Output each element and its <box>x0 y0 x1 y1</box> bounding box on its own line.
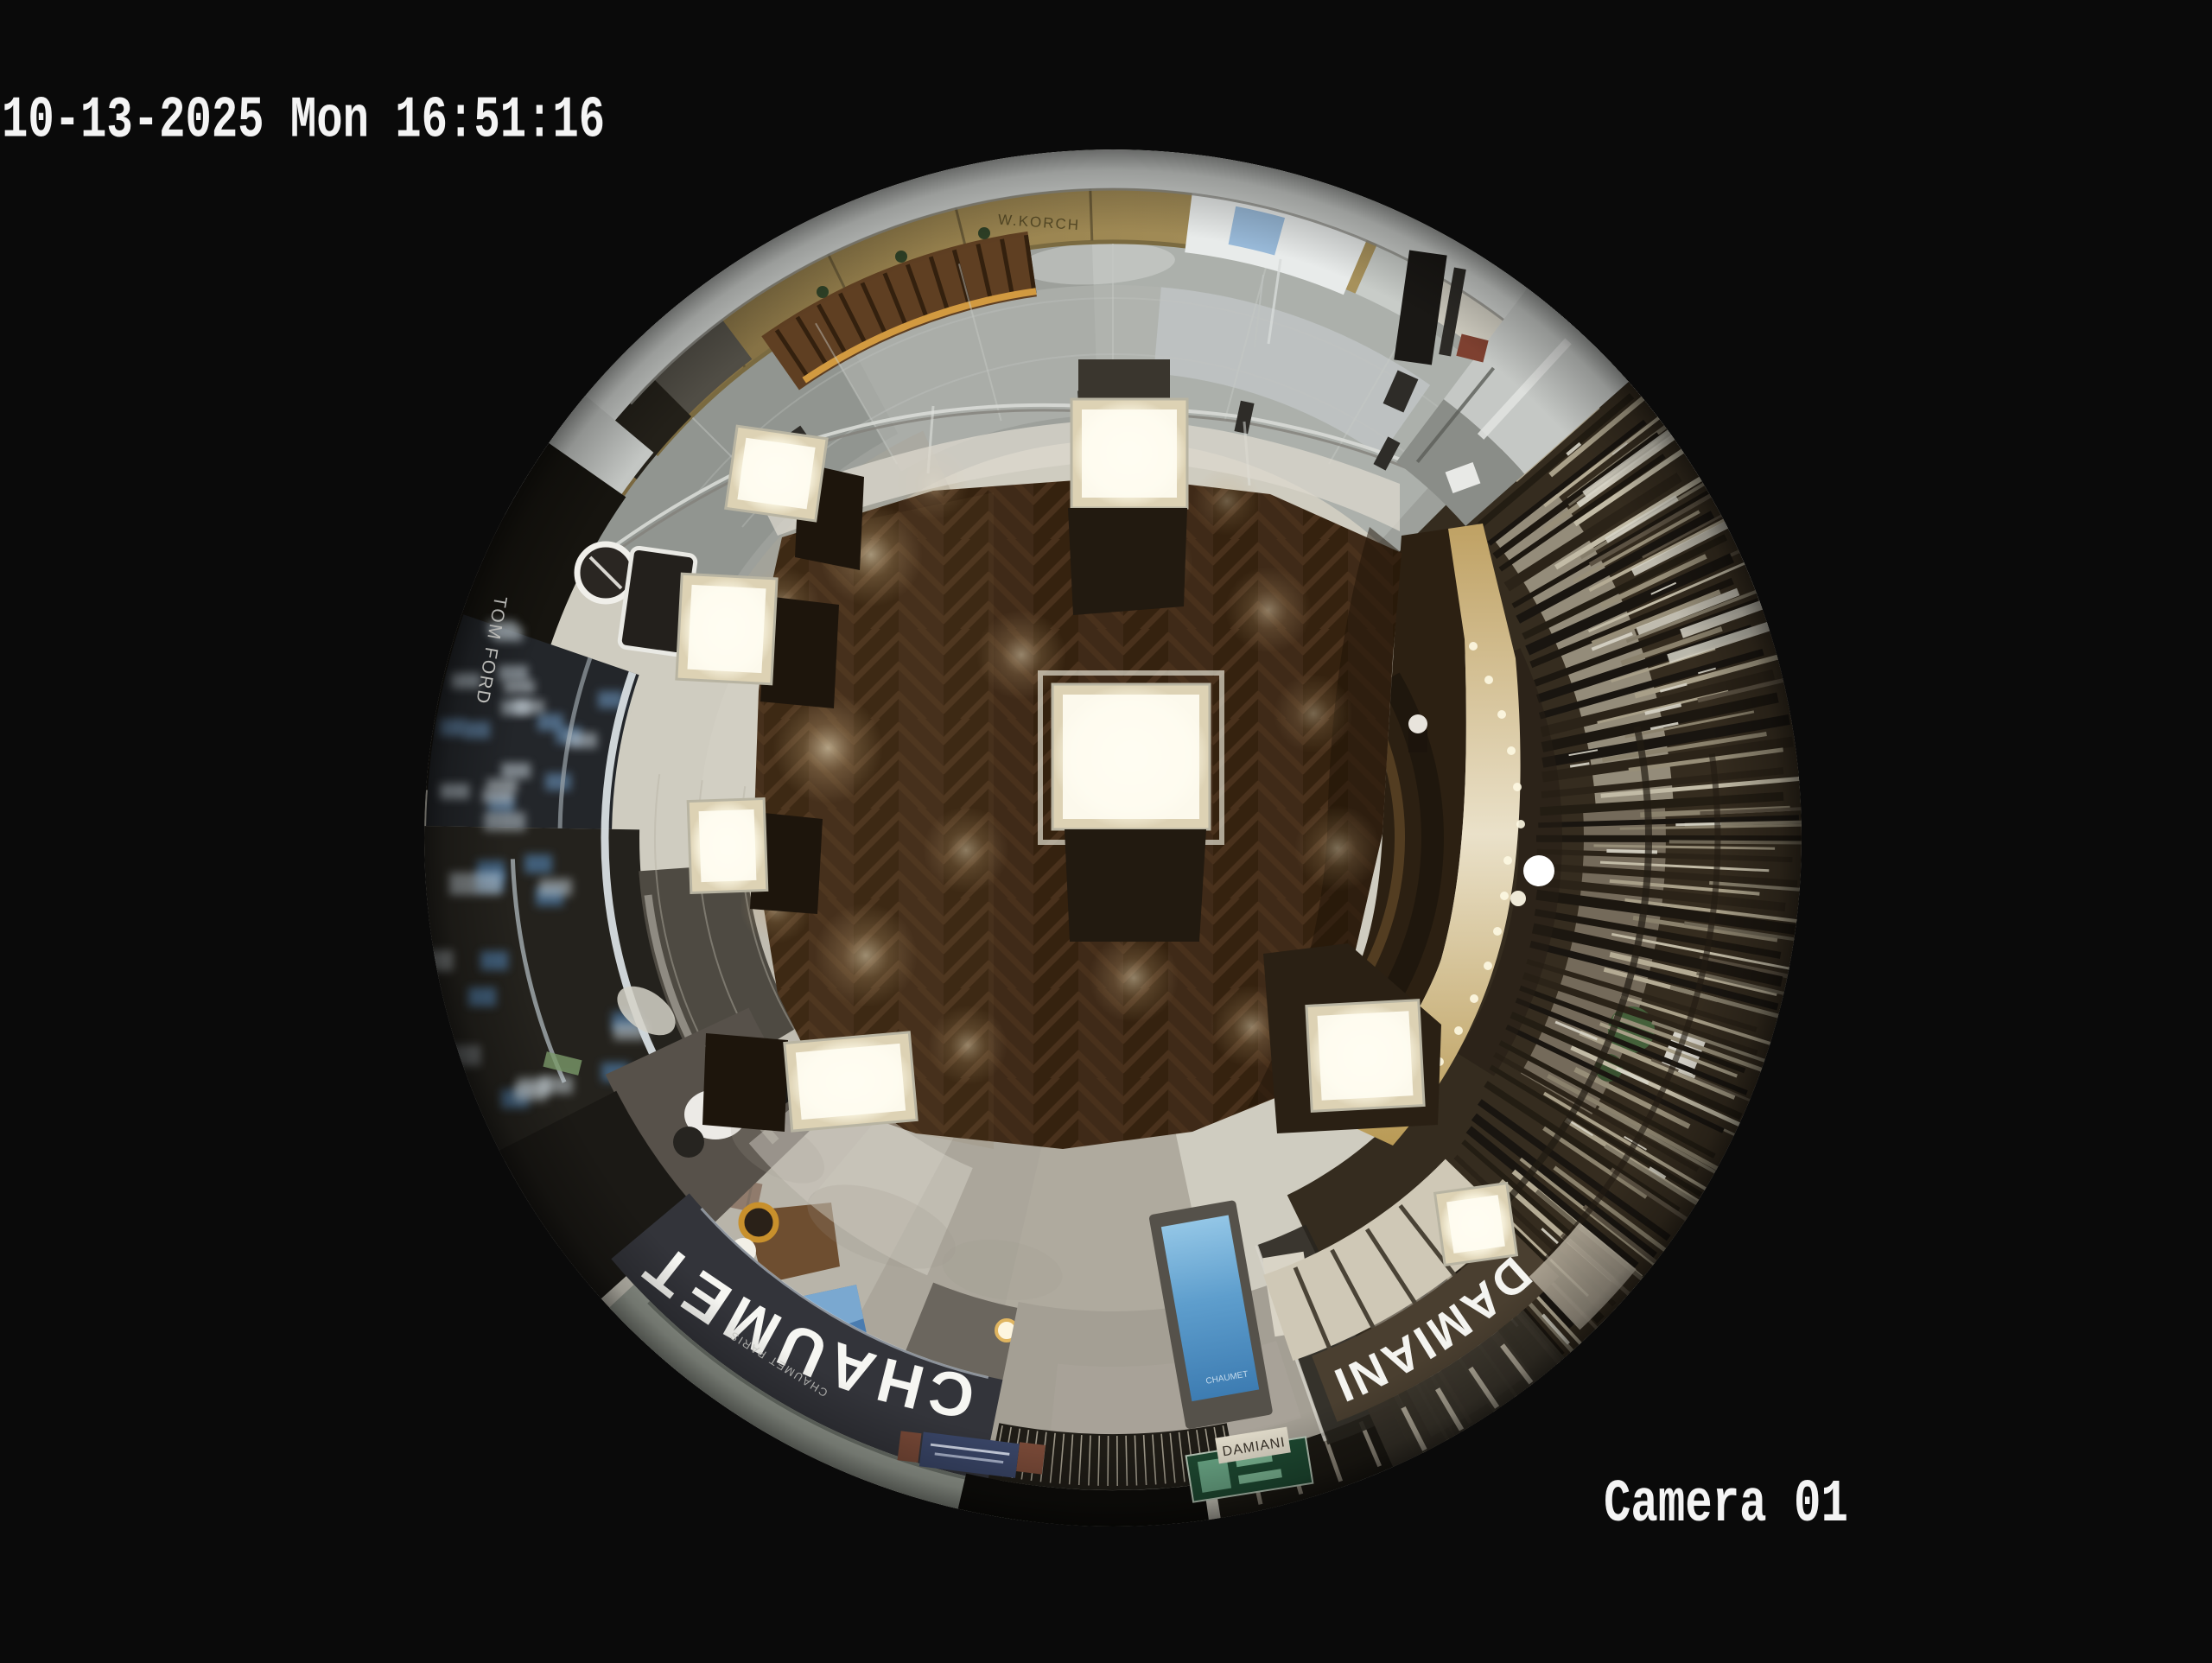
svg-text:10-13-2025 Mon 16:51:16: 10-13-2025 Mon 16:51:16 <box>2 87 605 154</box>
svg-text:Camera 01: Camera 01 <box>1604 1471 1848 1539</box>
